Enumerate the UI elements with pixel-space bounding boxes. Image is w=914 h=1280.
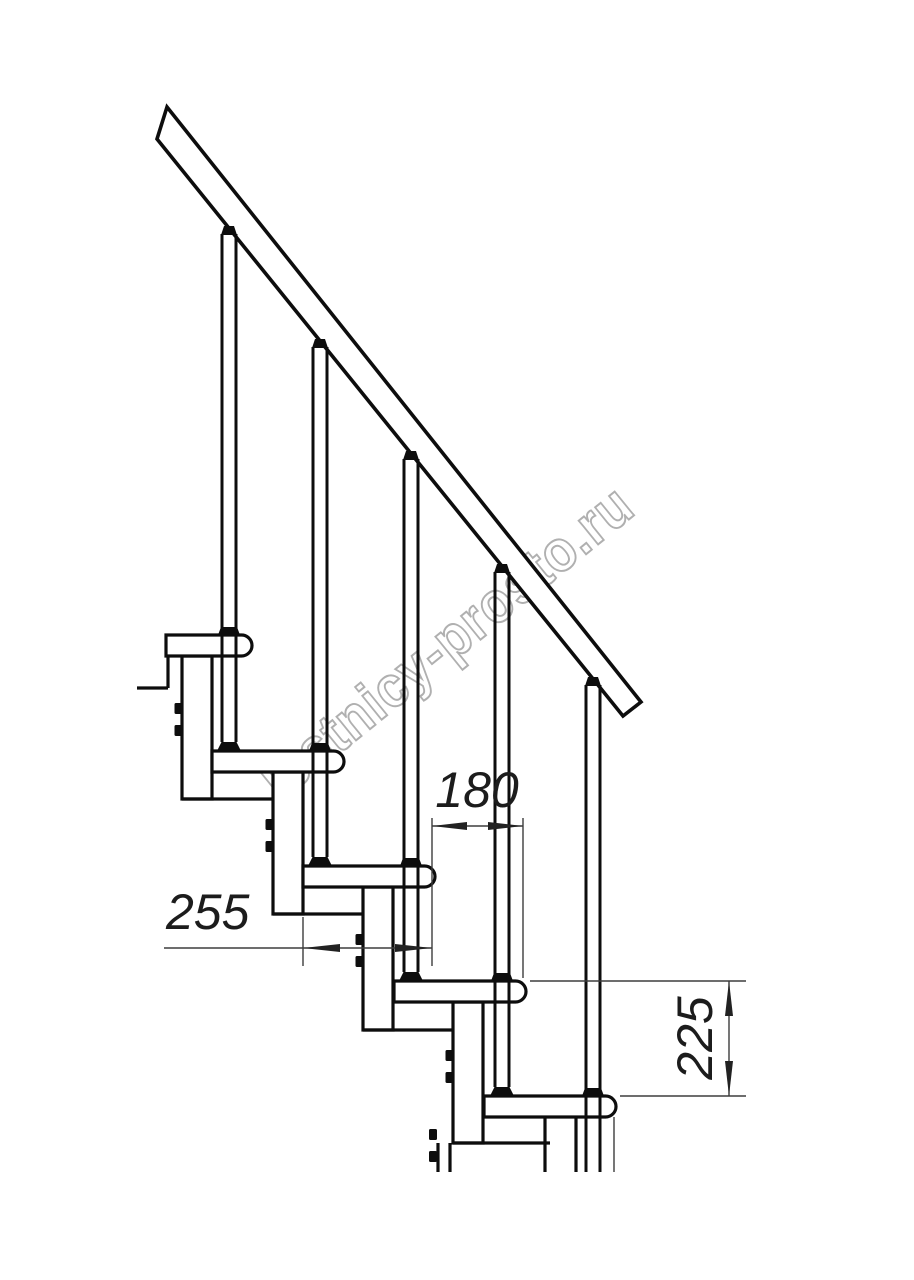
baluster-collar-icon — [218, 627, 240, 635]
bolt-icon — [266, 819, 274, 830]
staircase-drawing: lestnicy-prosto.ru — [0, 0, 914, 1280]
bolt-icon — [356, 956, 364, 967]
baluster-collar-icon — [309, 743, 331, 751]
arrow-left-icon — [432, 822, 467, 830]
bolt-icon — [356, 934, 364, 945]
arrow-right-icon — [488, 822, 523, 830]
baluster-foot-icon — [399, 972, 423, 981]
baluster-collar-icon — [491, 973, 513, 981]
arrow-left-icon — [303, 944, 340, 952]
dimension-225-label: 225 — [667, 996, 723, 1081]
bolt-icon — [175, 725, 183, 736]
baluster-foot-icon — [490, 1087, 514, 1096]
baluster-foot-icon — [217, 742, 241, 751]
baluster-collar-icon — [400, 858, 422, 866]
support-column-3 — [363, 887, 393, 1030]
bolt-icon — [446, 1072, 454, 1083]
cropped-upper-module-edge — [137, 656, 168, 688]
baluster-foot-icon — [308, 857, 332, 866]
tread-3 — [303, 866, 435, 887]
arrow-right-icon — [395, 944, 432, 952]
support-column-1 — [182, 656, 212, 799]
support-column-2 — [273, 772, 303, 914]
dimension-180-label: 180 — [435, 762, 519, 818]
tread-1 — [166, 635, 252, 656]
dimension-255-label: 255 — [165, 884, 250, 940]
bolt-icon — [429, 1129, 437, 1140]
arrow-up-icon — [725, 981, 733, 1016]
bolt-icon — [446, 1050, 454, 1061]
bolt-icon — [429, 1151, 437, 1162]
handrail — [157, 107, 641, 716]
tread-4 — [394, 981, 526, 1002]
baluster-collar-icon — [582, 1088, 604, 1096]
bolt-icon — [175, 703, 183, 714]
frame-lower-tongue — [438, 1143, 450, 1172]
dimension-225: 225 — [530, 981, 746, 1172]
baluster-4 — [495, 572, 509, 1087]
arrow-down-icon — [725, 1061, 733, 1096]
support-column-4 — [453, 1002, 483, 1143]
tread-5 — [484, 1096, 616, 1117]
drawing-page: lestnicy-prosto.ru — [0, 0, 914, 1280]
tread-2 — [212, 751, 344, 772]
baluster-1 — [222, 234, 236, 742]
bolt-icon — [266, 841, 274, 852]
